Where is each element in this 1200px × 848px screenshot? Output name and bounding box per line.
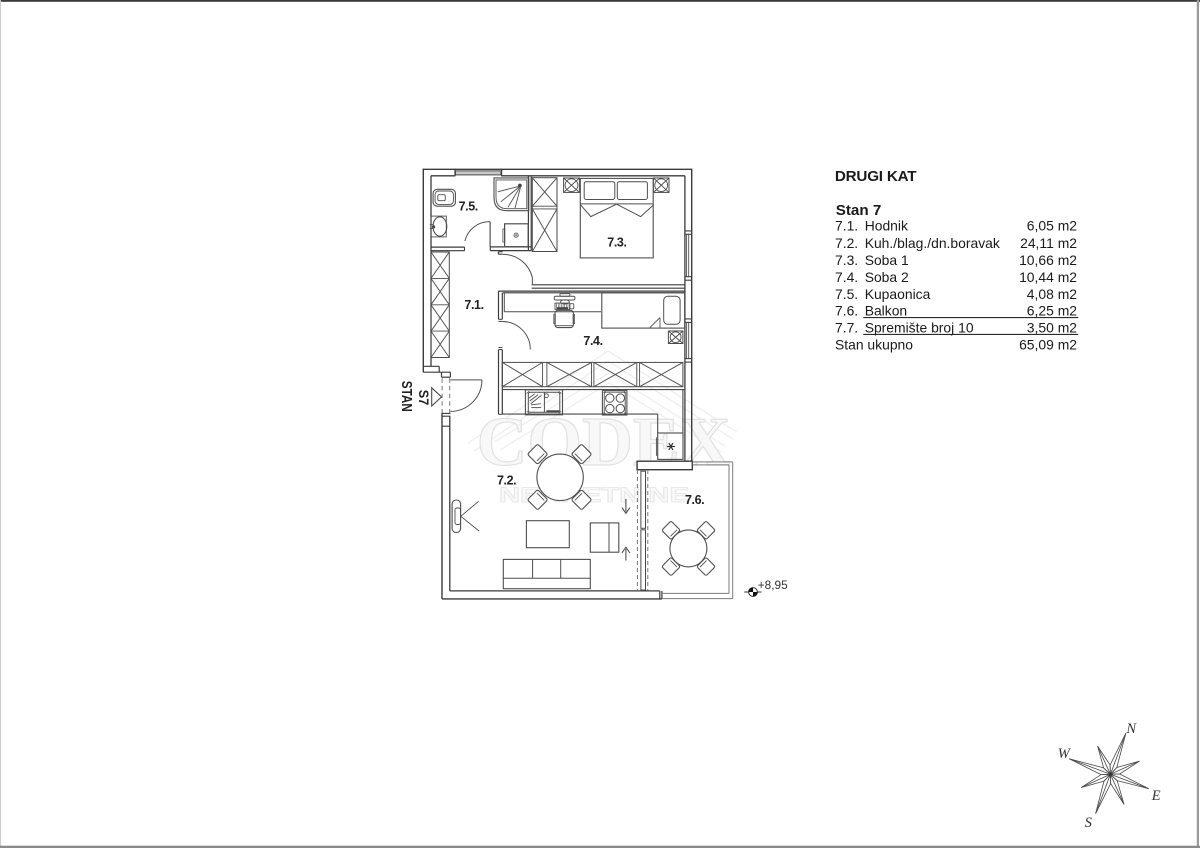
svg-text:NEKRETNINE: NEKRETNINE xyxy=(499,483,689,507)
svg-text:10,44 m2: 10,44 m2 xyxy=(1019,269,1077,285)
svg-text:N: N xyxy=(1125,721,1137,737)
svg-text:7.1.: 7.1. xyxy=(464,298,483,312)
svg-text:4,08 m2: 4,08 m2 xyxy=(1027,286,1077,302)
svg-text:6,25 m2: 6,25 m2 xyxy=(1027,303,1077,319)
svg-text:3,50 m2: 3,50 m2 xyxy=(1027,320,1077,336)
svg-text:7.4.: 7.4. xyxy=(583,334,602,348)
svg-text:7.1.: 7.1. xyxy=(835,218,858,234)
svg-text:Stan 7: Stan 7 xyxy=(836,202,882,219)
svg-text:+8,95: +8,95 xyxy=(758,578,788,592)
svg-text:24,11 m2: 24,11 m2 xyxy=(1020,235,1077,251)
svg-text:STAN: STAN xyxy=(398,381,415,412)
svg-text:65,09 m2: 65,09 m2 xyxy=(1019,336,1077,352)
svg-text:E: E xyxy=(1151,788,1161,804)
svg-text:S: S xyxy=(1085,815,1093,831)
svg-text:W: W xyxy=(1058,746,1072,762)
svg-text:7.5.: 7.5. xyxy=(835,286,858,302)
svg-text:DRUGI KAT: DRUGI KAT xyxy=(835,168,917,185)
svg-text:7.3.: 7.3. xyxy=(835,252,858,268)
svg-text:7.5.: 7.5. xyxy=(459,199,478,213)
svg-text:7.6.: 7.6. xyxy=(685,493,704,507)
svg-text:7.4.: 7.4. xyxy=(835,269,858,285)
svg-text:7.2.: 7.2. xyxy=(497,474,516,488)
svg-text:Spremište broj 10: Spremište broj 10 xyxy=(865,320,974,336)
svg-text:Stan ukupno: Stan ukupno xyxy=(835,336,913,352)
svg-text:Kupaonica: Kupaonica xyxy=(865,286,931,302)
svg-text:Hodnik: Hodnik xyxy=(865,218,908,234)
svg-text:6,05 m2: 6,05 m2 xyxy=(1027,218,1077,234)
svg-text:10,66 m2: 10,66 m2 xyxy=(1019,252,1077,268)
svg-text:S7: S7 xyxy=(416,390,431,406)
svg-text:Kuh./blag./dn.boravak: Kuh./blag./dn.boravak xyxy=(865,235,1000,251)
svg-text:7.6.: 7.6. xyxy=(835,303,858,319)
svg-text:7.2.: 7.2. xyxy=(835,235,858,251)
svg-text:Balkon: Balkon xyxy=(865,303,907,319)
svg-text:Soba 2: Soba 2 xyxy=(865,269,909,285)
svg-text:7.3.: 7.3. xyxy=(607,235,626,249)
svg-text:7.7.: 7.7. xyxy=(835,320,858,336)
svg-text:Soba 1: Soba 1 xyxy=(865,252,909,268)
